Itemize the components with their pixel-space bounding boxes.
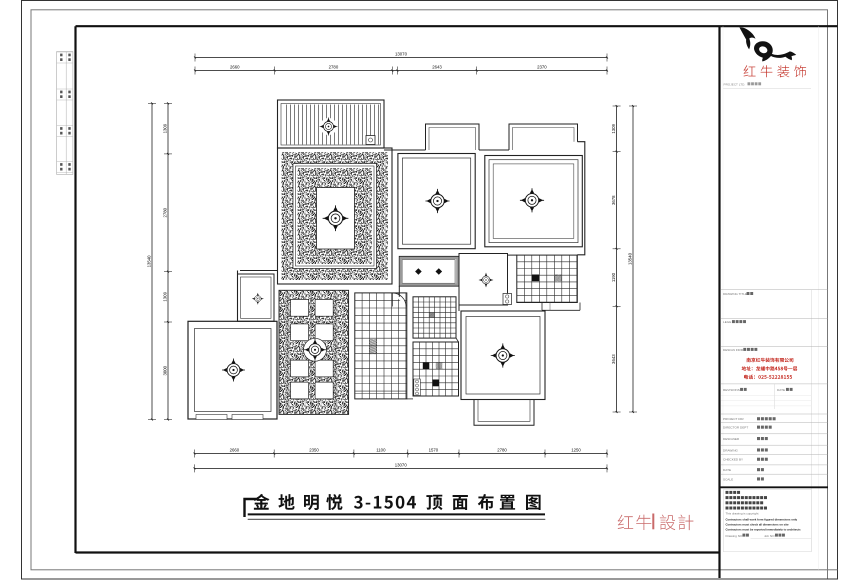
svg-text:DIRECTOR DEPT: DIRECTOR DEPT xyxy=(723,426,748,430)
svg-text:13070: 13070 xyxy=(395,463,408,468)
svg-text:2660: 2660 xyxy=(230,65,240,70)
svg-text:PROJECT LTD.: PROJECT LTD. xyxy=(724,83,746,87)
svg-text:Contractors must check all dim: Contractors must check all dimensions on… xyxy=(726,523,789,527)
svg-text:3678: 3678 xyxy=(611,195,616,205)
svg-text:13540: 13540 xyxy=(147,255,152,268)
svg-text:3643: 3643 xyxy=(611,354,616,364)
svg-text:13070: 13070 xyxy=(395,52,408,57)
svg-text:2350: 2350 xyxy=(309,448,319,453)
svg-text:DESIGN FIRM: DESIGN FIRM xyxy=(723,348,744,352)
svg-text:2660: 2660 xyxy=(230,448,240,453)
svg-text:1190: 1190 xyxy=(611,272,616,282)
svg-text:PROJECT DIR: PROJECT DIR xyxy=(723,417,744,421)
svg-text:2780: 2780 xyxy=(497,448,507,453)
svg-text:1309: 1309 xyxy=(163,291,168,301)
svg-text:DESIGNER: DESIGNER xyxy=(723,437,740,441)
svg-text:Drawing NO: Drawing NO xyxy=(726,534,743,538)
svg-text:SCALE: SCALE xyxy=(723,477,733,481)
svg-text:2370: 2370 xyxy=(537,65,547,70)
svg-text:Contractors must be reported i: Contractors must be reported immediately… xyxy=(726,528,801,532)
svg-text:DRAWING: DRAWING xyxy=(723,448,738,452)
svg-text:3000: 3000 xyxy=(163,365,168,375)
svg-text:1309: 1309 xyxy=(611,123,616,133)
svg-text:DATE: DATE xyxy=(723,468,731,472)
svg-text:This drawing is copyright: This drawing is copyright xyxy=(726,512,759,516)
svg-text:1309: 1309 xyxy=(163,123,168,133)
svg-text:1570: 1570 xyxy=(429,448,439,453)
svg-text:Contractors shall work form fi: Contractors shall work form figured dime… xyxy=(726,517,798,521)
svg-text:2643: 2643 xyxy=(432,65,442,70)
svg-text:13540: 13540 xyxy=(628,252,633,265)
svg-text:1100: 1100 xyxy=(376,448,386,453)
svg-text:LEGE: LEGE xyxy=(723,320,731,324)
svg-text:CHECKED BY: CHECKED BY xyxy=(723,458,743,462)
svg-text:REVISIONS: REVISIONS xyxy=(723,388,740,392)
svg-text:Job NO: Job NO xyxy=(764,534,775,538)
svg-text:2780: 2780 xyxy=(163,207,168,217)
svg-text:1250: 1250 xyxy=(571,448,581,453)
svg-text:2780: 2780 xyxy=(329,65,339,70)
svg-text:DATE: DATE xyxy=(777,388,785,392)
svg-text:DRAWING TITLE: DRAWING TITLE xyxy=(723,292,747,296)
